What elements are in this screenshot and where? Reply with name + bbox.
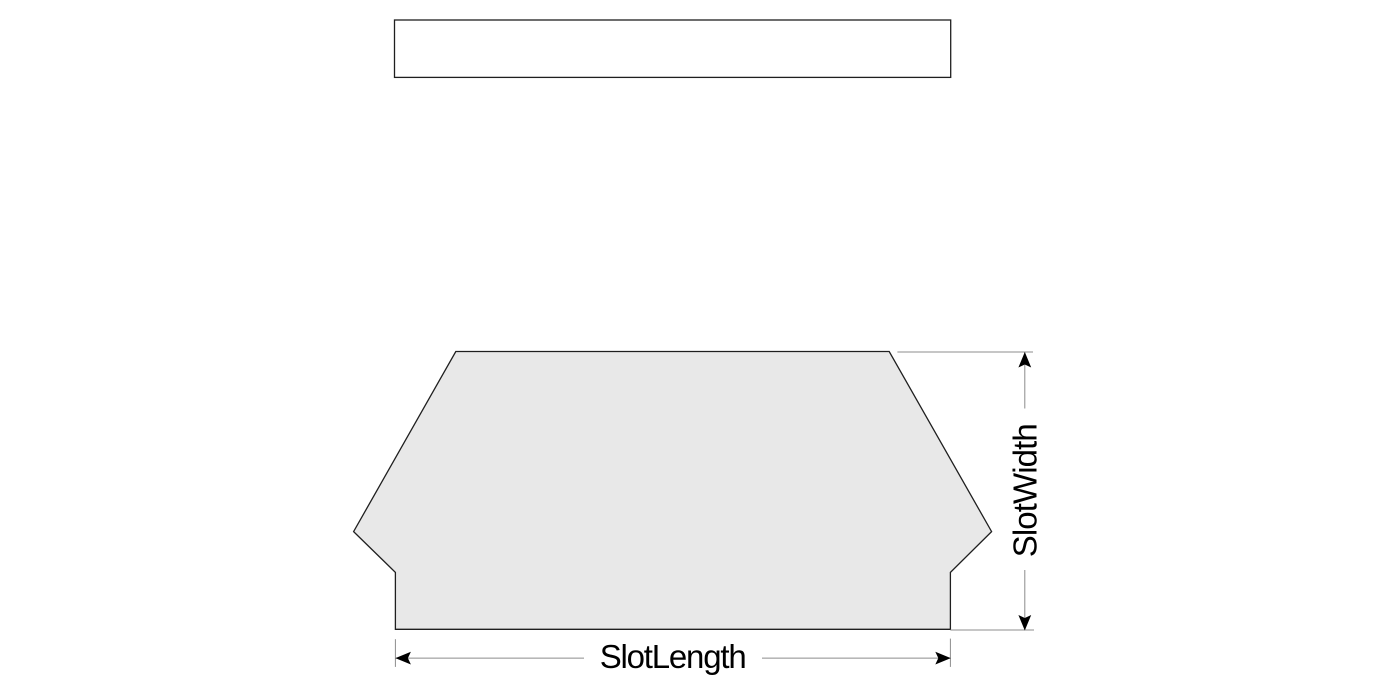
svg-text:SlotWidth: SlotWidth [1006,424,1043,557]
svg-text:SlotLength: SlotLength [600,638,746,675]
